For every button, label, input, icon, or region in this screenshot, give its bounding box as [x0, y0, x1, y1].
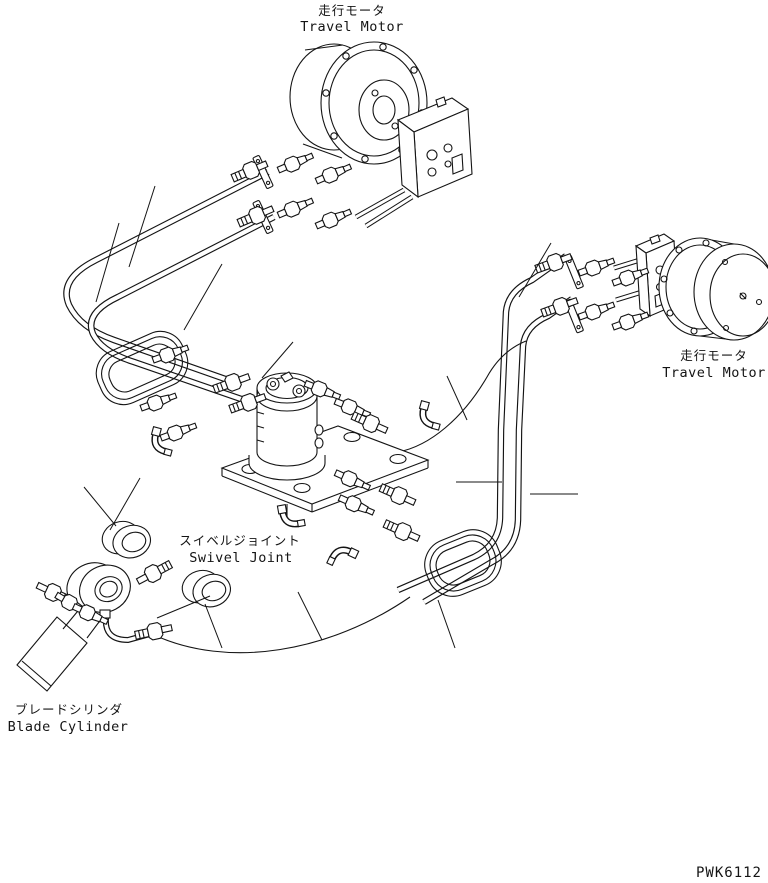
fitting-icon: [577, 254, 617, 280]
elbow-fitting-icon: [415, 401, 444, 430]
fitting-icon: [314, 205, 354, 232]
hose-bottom-sweep: [152, 597, 410, 653]
fitting-icon: [159, 419, 199, 445]
fitting-icon: [314, 160, 354, 187]
label-blade-cylinder-en: Blade Cylinder: [8, 719, 129, 735]
label-travel-motor-right-jp: 走行モータ: [680, 348, 748, 363]
elbow-fitting-icon: [327, 541, 359, 573]
label-travel-motor-right-en: Travel Motor: [662, 365, 766, 381]
fittings: [34, 149, 650, 643]
fitting-icon: [577, 298, 617, 324]
hose-end-icon: [382, 516, 422, 546]
label-travel-motor-top-en: Travel Motor: [300, 19, 404, 35]
fitting-icon: [276, 194, 316, 221]
label-swivel-joint-jp: スイベルジョイント: [179, 533, 301, 548]
elbow-fitting-icon: [277, 502, 305, 530]
collar-bushing-icon: [98, 514, 155, 566]
label-swivel-joint-en: Swivel Joint: [189, 550, 293, 566]
label-blade-cylinder-jp: ブレードシリンダ: [15, 702, 123, 717]
drawing-part-code: PWK6112: [696, 865, 762, 881]
travel-motor-right-drawing: [614, 234, 768, 340]
hose-end-icon: [378, 480, 418, 510]
fitting-icon: [276, 149, 316, 176]
hydraulic-piping-diagram: 走行モータ Travel Motor 走行モータ Travel Motor スイ…: [0, 0, 768, 883]
label-travel-motor-top-jp: 走行モータ: [318, 3, 386, 18]
travel-motor-top-drawing: [290, 42, 472, 226]
blade-cylinder-drawing: [17, 549, 150, 691]
fitting-icon: [139, 389, 179, 415]
parts-diagram-page: 走行モータ Travel Motor 走行モータ Travel Motor スイ…: [0, 0, 768, 883]
hose-end-icon: [134, 557, 174, 588]
